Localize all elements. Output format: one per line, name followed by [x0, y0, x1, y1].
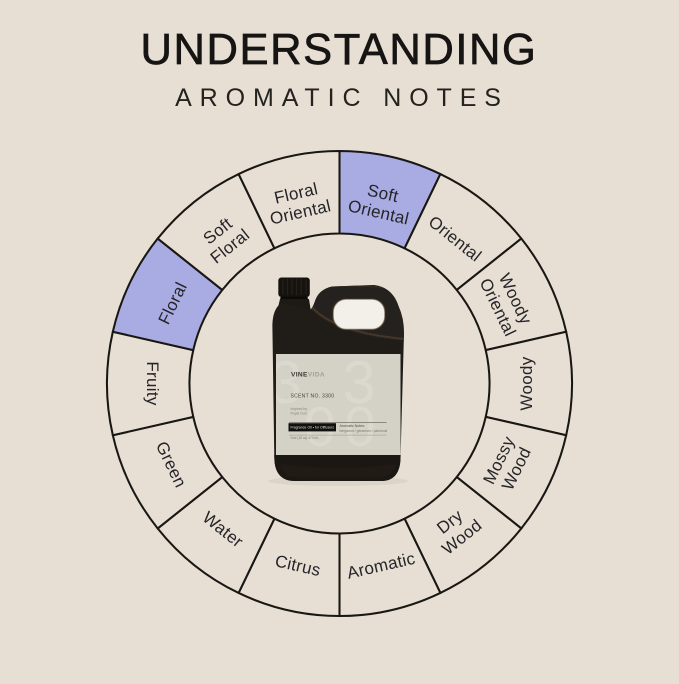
svg-text:SCENT NO. 3300: SCENT NO. 3300	[291, 393, 335, 399]
svg-text:AROMATIC NOTES: AROMATIC NOTES	[175, 84, 509, 112]
svg-text:Royal Oud: Royal Oud	[291, 412, 307, 416]
svg-text:Fruity: Fruity	[143, 361, 162, 405]
svg-text:Aromatic Notes:: Aromatic Notes:	[340, 424, 366, 428]
svg-text:bergamot / geranium / patchoul: bergamot / geranium / patchouli	[340, 429, 388, 433]
svg-text:Inspired by: Inspired by	[291, 407, 308, 411]
svg-text:VINEVIDA: VINEVIDA	[291, 371, 325, 378]
svg-text:Woody: Woody	[517, 356, 536, 410]
svg-text:One (16 oz) 473 mL: One (16 oz) 473 mL	[291, 436, 320, 440]
svg-text:Fragrance Oil • for Diffusers: Fragrance Oil • for Diffusers	[291, 426, 335, 430]
svg-text:UNDERSTANDING: UNDERSTANDING	[140, 26, 537, 74]
